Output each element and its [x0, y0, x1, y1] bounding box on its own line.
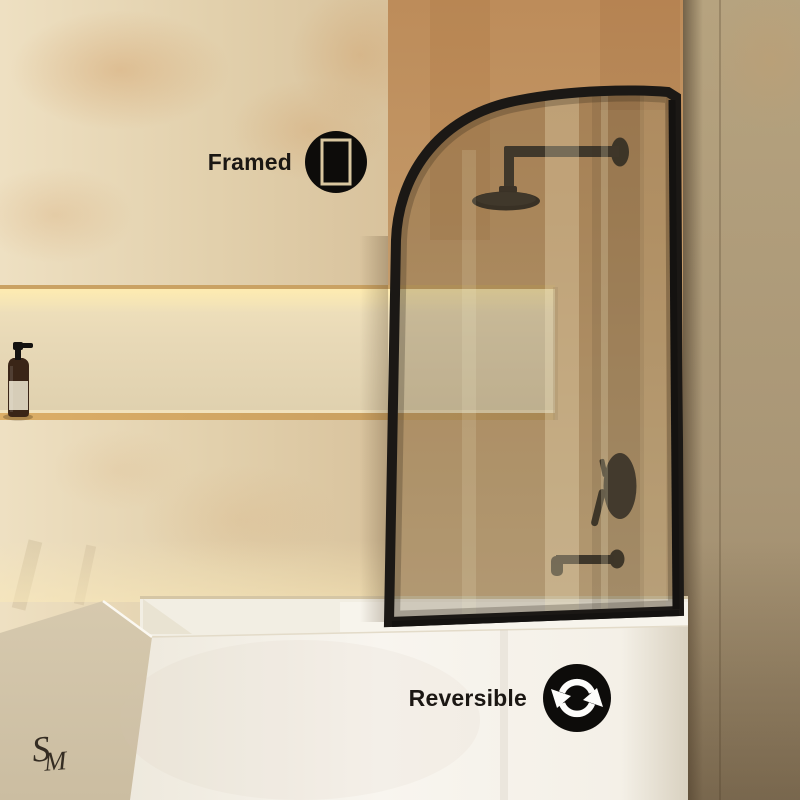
reversible-label: Reversible: [409, 685, 527, 712]
framed-label: Framed: [208, 149, 292, 176]
glass-panel: [389, 85, 679, 630]
brand-logo-m: M: [43, 745, 68, 777]
brand-logo: S M: [28, 730, 76, 782]
product-image: Framed Reversible S M: [0, 0, 800, 800]
panel-shadow: [360, 236, 388, 622]
reversible-arrows-icon: [543, 664, 611, 732]
feature-reversible: Reversible: [0, 664, 611, 732]
wall-under-glow: [0, 540, 392, 602]
feature-framed: Framed: [0, 131, 367, 193]
wall-right: [683, 0, 800, 800]
frame-icon: [305, 131, 367, 193]
